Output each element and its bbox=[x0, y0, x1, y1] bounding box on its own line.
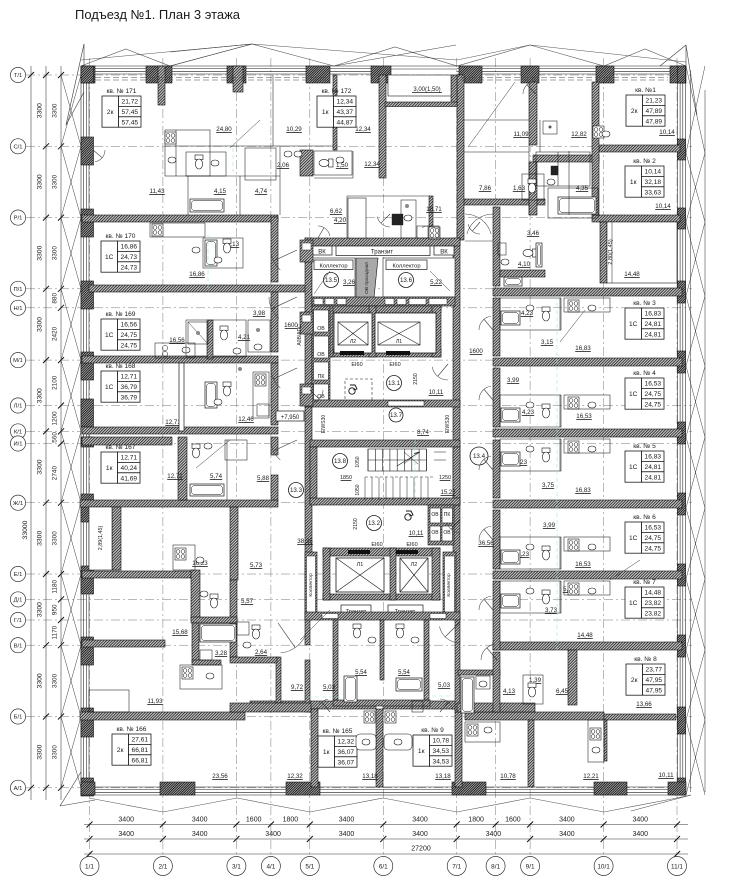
svg-text:ВК: ВК bbox=[318, 250, 326, 256]
svg-text:EI60: EI60 bbox=[371, 542, 382, 548]
svg-text:3400: 3400 bbox=[633, 831, 649, 838]
svg-text:7/1: 7/1 bbox=[452, 863, 461, 870]
svg-text:EI60: EI60 bbox=[351, 362, 362, 368]
svg-text:4,74: 4,74 bbox=[255, 188, 268, 195]
svg-text:3400: 3400 bbox=[118, 831, 134, 838]
svg-text:4,21: 4,21 bbox=[238, 334, 251, 341]
svg-text:кв. № 2: кв. № 2 bbox=[633, 158, 656, 165]
svg-text:6,45: 6,45 bbox=[556, 688, 569, 695]
svg-text:1к: 1к bbox=[106, 465, 113, 472]
svg-text:1к: 1к bbox=[418, 748, 425, 755]
svg-text:А/1: А/1 bbox=[14, 786, 23, 792]
svg-text:11,93: 11,93 bbox=[147, 698, 163, 705]
svg-text:12,46: 12,46 bbox=[238, 416, 254, 423]
svg-text:кв. № 171: кв. № 171 bbox=[107, 88, 137, 95]
svg-text:36,79: 36,79 bbox=[121, 394, 138, 401]
svg-text:12,34: 12,34 bbox=[337, 99, 354, 106]
svg-text:32,18: 32,18 bbox=[645, 179, 662, 186]
svg-text:24,73: 24,73 bbox=[121, 254, 138, 261]
svg-text:33000: 33000 bbox=[22, 520, 29, 539]
svg-text:В/1: В/1 bbox=[14, 643, 23, 649]
svg-text:И/1: И/1 bbox=[13, 442, 22, 448]
svg-text:23,82: 23,82 bbox=[645, 600, 662, 607]
svg-text:13.3: 13.3 bbox=[290, 487, 303, 494]
svg-text:8,74: 8,74 bbox=[417, 430, 429, 436]
svg-text:5,54: 5,54 bbox=[355, 670, 367, 676]
svg-text:38,35: 38,35 bbox=[297, 538, 313, 545]
svg-text:М/1: М/1 bbox=[13, 358, 23, 364]
svg-text:5,88: 5,88 bbox=[257, 475, 270, 482]
svg-text:3400: 3400 bbox=[192, 831, 208, 838]
svg-text:12,34: 12,34 bbox=[364, 161, 380, 168]
svg-text:10,29: 10,29 bbox=[286, 126, 302, 133]
svg-text:4,23: 4,23 bbox=[522, 409, 535, 416]
svg-text:950: 950 bbox=[52, 604, 59, 615]
svg-text:3300: 3300 bbox=[37, 245, 44, 260]
svg-text:6/1: 6/1 bbox=[379, 863, 388, 870]
svg-text:ОВ: ОВ bbox=[443, 530, 451, 536]
svg-text:Л2: Л2 bbox=[411, 562, 418, 568]
svg-text:24,75: 24,75 bbox=[121, 332, 138, 339]
svg-text:ВК: ВК bbox=[440, 250, 448, 256]
svg-text:24,75: 24,75 bbox=[645, 401, 662, 408]
svg-text:3400: 3400 bbox=[339, 831, 355, 838]
svg-text:Д/1: Д/1 bbox=[14, 598, 23, 604]
svg-text:ОВ: ОВ bbox=[431, 512, 439, 518]
svg-text:9,72: 9,72 bbox=[291, 684, 304, 691]
svg-text:16,86: 16,86 bbox=[189, 271, 205, 278]
svg-text:10,14: 10,14 bbox=[659, 129, 675, 136]
svg-text:А0В/АПС: А0В/АПС bbox=[297, 324, 303, 346]
svg-text:3,99: 3,99 bbox=[543, 522, 556, 529]
svg-text:24,81: 24,81 bbox=[645, 321, 662, 328]
svg-text:12,21: 12,21 bbox=[583, 773, 599, 780]
svg-text:13.1: 13.1 bbox=[388, 380, 401, 387]
svg-text:6,62: 6,62 bbox=[330, 208, 343, 215]
svg-text:57,45: 57,45 bbox=[122, 119, 139, 126]
svg-text:880: 880 bbox=[52, 293, 59, 304]
svg-text:21,72: 21,72 bbox=[122, 99, 139, 106]
svg-text:4,20: 4,20 bbox=[334, 217, 347, 224]
svg-text:3/1: 3/1 bbox=[232, 863, 241, 870]
svg-text:Г/1: Г/1 bbox=[14, 618, 22, 624]
svg-text:12,71: 12,71 bbox=[121, 455, 138, 462]
svg-text:Л/1: Л/1 bbox=[14, 404, 23, 410]
svg-text:2,80(1,45): 2,80(1,45) bbox=[608, 239, 614, 265]
svg-text:16,53: 16,53 bbox=[645, 381, 662, 388]
svg-text:3400: 3400 bbox=[118, 817, 134, 824]
svg-text:1С: 1С bbox=[105, 254, 114, 261]
svg-text:66,81: 66,81 bbox=[132, 747, 149, 754]
svg-text:3400: 3400 bbox=[486, 831, 502, 838]
svg-text:1800: 1800 bbox=[468, 817, 484, 824]
svg-text:24,75: 24,75 bbox=[645, 535, 662, 542]
svg-text:ПК: ПК bbox=[318, 374, 325, 380]
svg-text:3400: 3400 bbox=[559, 817, 575, 824]
svg-text:3300: 3300 bbox=[36, 459, 43, 474]
svg-text:5,03: 5,03 bbox=[323, 684, 336, 691]
svg-text:14,48: 14,48 bbox=[577, 632, 593, 639]
svg-text:+7,950: +7,950 bbox=[281, 415, 300, 421]
svg-text:2/1: 2/1 bbox=[158, 863, 167, 870]
svg-text:12,32: 12,32 bbox=[338, 739, 355, 746]
svg-text:47,89: 47,89 bbox=[646, 108, 663, 115]
svg-text:1600: 1600 bbox=[246, 817, 262, 824]
svg-text:1600: 1600 bbox=[505, 817, 521, 824]
svg-text:1800: 1800 bbox=[283, 817, 299, 824]
svg-text:16,53: 16,53 bbox=[575, 561, 591, 568]
svg-text:13.7: 13.7 bbox=[390, 412, 403, 419]
svg-text:15,25: 15,25 bbox=[440, 490, 456, 496]
svg-text:1С: 1С bbox=[629, 391, 638, 398]
svg-text:21,23: 21,23 bbox=[646, 98, 663, 105]
svg-text:27,61: 27,61 bbox=[132, 737, 149, 744]
svg-text:1050: 1050 bbox=[355, 484, 361, 495]
svg-text:44,87: 44,87 bbox=[337, 119, 354, 126]
svg-text:1050: 1050 bbox=[355, 456, 361, 467]
svg-text:16,83: 16,83 bbox=[645, 454, 662, 461]
svg-text:5,54: 5,54 bbox=[398, 670, 410, 676]
svg-text:1С: 1С bbox=[105, 332, 114, 339]
svg-text:3300: 3300 bbox=[37, 317, 44, 332]
svg-text:3300: 3300 bbox=[36, 174, 43, 189]
svg-text:Коллектор: Коллектор bbox=[392, 264, 420, 270]
svg-text:Р/1: Р/1 bbox=[14, 216, 23, 222]
svg-text:2,89(1,45): 2,89(1,45) bbox=[98, 526, 104, 551]
svg-text:11,09: 11,09 bbox=[513, 131, 529, 138]
svg-text:3300: 3300 bbox=[52, 246, 59, 261]
svg-text:23,56: 23,56 bbox=[212, 773, 228, 780]
svg-text:5,74: 5,74 bbox=[210, 473, 223, 480]
svg-text:ОВ: ОВ bbox=[431, 530, 439, 536]
svg-text:кв. №1: кв. №1 bbox=[635, 87, 656, 94]
svg-text:Ж/1: Ж/1 bbox=[13, 501, 23, 507]
svg-text:9/1: 9/1 bbox=[526, 863, 535, 870]
svg-text:16,83: 16,83 bbox=[575, 487, 591, 494]
svg-text:13,66: 13,66 bbox=[636, 701, 652, 708]
svg-text:3400: 3400 bbox=[412, 817, 428, 824]
svg-text:кв. № 172: кв. № 172 bbox=[322, 88, 352, 95]
svg-text:EIWS30: EIWS30 bbox=[321, 415, 327, 434]
svg-text:3,28: 3,28 bbox=[215, 650, 228, 657]
svg-text:Коллектор: Коллектор bbox=[446, 573, 452, 597]
svg-text:14,48: 14,48 bbox=[645, 590, 662, 597]
svg-text:Подъезд №1. План 3 этажа: Подъезд №1. План 3 этажа bbox=[75, 7, 241, 22]
svg-text:10,78: 10,78 bbox=[500, 773, 516, 780]
svg-text:16,56: 16,56 bbox=[121, 322, 138, 329]
svg-text:1,63: 1,63 bbox=[513, 185, 526, 192]
svg-text:13,18: 13,18 bbox=[362, 773, 378, 780]
svg-text:EIWS30: EIWS30 bbox=[445, 415, 451, 434]
svg-text:12,32: 12,32 bbox=[287, 773, 303, 780]
svg-text:Е/1: Е/1 bbox=[14, 572, 23, 578]
svg-text:Л1: Л1 bbox=[357, 562, 364, 568]
svg-text:1С: 1С bbox=[629, 321, 638, 328]
svg-text:EI60: EI60 bbox=[406, 542, 417, 548]
svg-text:2к: 2к bbox=[117, 747, 124, 754]
svg-text:13.5: 13.5 bbox=[325, 277, 338, 284]
svg-text:1к: 1к bbox=[630, 179, 637, 186]
svg-text:24,75: 24,75 bbox=[645, 391, 662, 398]
svg-text:кв. № 8: кв. № 8 bbox=[634, 656, 657, 663]
svg-text:1850: 1850 bbox=[340, 475, 352, 481]
svg-text:3300: 3300 bbox=[36, 103, 43, 118]
svg-text:5,03: 5,03 bbox=[438, 682, 451, 689]
svg-text:12,71: 12,71 bbox=[167, 473, 183, 480]
svg-text:3300: 3300 bbox=[37, 744, 44, 759]
svg-text:Т/1: Т/1 bbox=[14, 73, 22, 79]
svg-text:3,15: 3,15 bbox=[541, 339, 554, 346]
svg-text:36,07: 36,07 bbox=[338, 759, 355, 766]
svg-text:С/1: С/1 bbox=[13, 144, 22, 150]
svg-text:Л2: Л2 bbox=[350, 339, 356, 345]
svg-text:Коллектор: Коллектор bbox=[308, 573, 314, 597]
svg-text:15,68: 15,68 bbox=[172, 629, 188, 636]
svg-text:3300: 3300 bbox=[36, 531, 43, 546]
svg-text:560: 560 bbox=[51, 432, 58, 443]
svg-text:кв. № 165: кв. № 165 bbox=[323, 728, 353, 735]
svg-text:66,81: 66,81 bbox=[132, 757, 149, 764]
svg-text:47,89: 47,89 bbox=[646, 118, 663, 125]
svg-text:4,13: 4,13 bbox=[503, 688, 516, 695]
svg-text:41,69: 41,69 bbox=[121, 475, 138, 482]
svg-text:2150: 2150 bbox=[353, 518, 359, 530]
svg-text:10,78: 10,78 bbox=[433, 738, 450, 745]
svg-text:3300: 3300 bbox=[37, 602, 44, 617]
svg-text:14,48: 14,48 bbox=[624, 271, 640, 278]
svg-text:кв. № 9: кв. № 9 bbox=[421, 727, 444, 734]
svg-text:кв. № 170: кв. № 170 bbox=[106, 233, 136, 240]
svg-text:10,14: 10,14 bbox=[645, 169, 662, 176]
svg-text:3,00(1,50): 3,00(1,50) bbox=[413, 87, 440, 93]
svg-text:1600: 1600 bbox=[284, 322, 298, 329]
svg-text:24,73: 24,73 bbox=[121, 264, 138, 271]
svg-text:23,77: 23,77 bbox=[646, 667, 663, 674]
svg-text:Коллектор: Коллектор bbox=[319, 264, 347, 270]
svg-text:5/1: 5/1 bbox=[305, 863, 314, 870]
svg-text:ОВ: ОВ bbox=[317, 352, 325, 358]
svg-text:1С: 1С bbox=[629, 464, 638, 471]
svg-text:2740: 2740 bbox=[52, 466, 59, 481]
svg-text:5,22: 5,22 bbox=[430, 280, 442, 286]
svg-text:1200: 1200 bbox=[51, 411, 58, 426]
svg-text:10,11: 10,11 bbox=[409, 531, 424, 537]
svg-text:1250: 1250 bbox=[439, 475, 451, 481]
svg-text:EI60: EI60 bbox=[389, 362, 400, 368]
svg-text:13.8: 13.8 bbox=[334, 458, 347, 465]
svg-text:12,71: 12,71 bbox=[121, 374, 138, 381]
svg-text:3300: 3300 bbox=[51, 174, 58, 189]
svg-text:24,81: 24,81 bbox=[645, 464, 662, 471]
svg-text:33,63: 33,63 bbox=[645, 189, 662, 196]
svg-text:3,46: 3,46 bbox=[527, 230, 540, 237]
svg-text:18,71: 18,71 bbox=[426, 206, 442, 213]
svg-text:1С: 1С bbox=[629, 535, 638, 542]
svg-text:24,75: 24,75 bbox=[645, 545, 662, 552]
svg-text:3400: 3400 bbox=[633, 817, 649, 824]
svg-text:36,79: 36,79 bbox=[121, 384, 138, 391]
svg-text:1600: 1600 bbox=[469, 348, 483, 355]
svg-text:1к: 1к bbox=[322, 109, 329, 116]
svg-text:1180: 1180 bbox=[52, 579, 59, 593]
svg-text:1С: 1С bbox=[105, 384, 114, 391]
svg-text:36,07: 36,07 bbox=[338, 749, 355, 756]
svg-text:12,82: 12,82 bbox=[571, 131, 587, 138]
svg-text:10,11: 10,11 bbox=[658, 772, 674, 779]
svg-text:24,81: 24,81 bbox=[645, 474, 662, 481]
svg-text:13.6: 13.6 bbox=[400, 277, 413, 284]
svg-text:К/1: К/1 bbox=[14, 430, 22, 436]
svg-text:1С: 1С bbox=[629, 600, 638, 607]
svg-text:2150: 2150 bbox=[413, 373, 419, 385]
svg-text:1,50: 1,50 bbox=[336, 162, 349, 169]
svg-text:13,18: 13,18 bbox=[435, 773, 451, 780]
svg-text:П/1: П/1 bbox=[13, 287, 22, 293]
svg-text:4,15: 4,15 bbox=[214, 188, 227, 195]
svg-text:кв. № 3: кв. № 3 bbox=[633, 300, 656, 307]
svg-text:2к: 2к bbox=[107, 109, 114, 116]
svg-text:2,64: 2,64 bbox=[255, 649, 268, 656]
svg-text:3300: 3300 bbox=[52, 531, 59, 546]
svg-text:3,98: 3,98 bbox=[253, 310, 266, 317]
svg-text:40,24: 40,24 bbox=[121, 465, 138, 472]
svg-text:7,86: 7,86 bbox=[479, 185, 492, 192]
svg-text:34,53: 34,53 bbox=[433, 748, 450, 755]
svg-text:кв. № 4: кв. № 4 bbox=[633, 370, 656, 377]
svg-text:3,99: 3,99 bbox=[507, 377, 520, 384]
svg-text:24,80: 24,80 bbox=[216, 126, 232, 133]
svg-text:11,43: 11,43 bbox=[149, 188, 165, 195]
svg-text:3400: 3400 bbox=[265, 831, 281, 838]
svg-text:8/1: 8/1 bbox=[491, 863, 500, 870]
svg-text:11/1: 11/1 bbox=[671, 863, 683, 870]
svg-text:43,37: 43,37 bbox=[337, 109, 354, 116]
svg-text:кв. № 7: кв. № 7 bbox=[633, 579, 656, 586]
svg-text:кв. № 166: кв. № 166 bbox=[117, 726, 147, 733]
svg-text:5,57: 5,57 bbox=[241, 598, 254, 605]
svg-text:10,14: 10,14 bbox=[655, 203, 671, 210]
svg-text:1170: 1170 bbox=[51, 625, 58, 639]
svg-text:кв. № 169: кв. № 169 bbox=[106, 311, 136, 318]
svg-text:57,45: 57,45 bbox=[122, 109, 139, 116]
svg-text:5,73: 5,73 bbox=[250, 562, 263, 569]
svg-text:10/1: 10/1 bbox=[597, 863, 610, 870]
svg-text:ОВ: ОВ bbox=[317, 326, 325, 332]
svg-text:34,53: 34,53 bbox=[433, 758, 450, 765]
svg-text:13.2: 13.2 bbox=[368, 520, 381, 527]
svg-text:3300: 3300 bbox=[52, 745, 59, 760]
svg-text:2к: 2к bbox=[631, 677, 638, 684]
svg-text:3400: 3400 bbox=[339, 817, 355, 824]
svg-text:24,75: 24,75 bbox=[121, 342, 138, 349]
svg-text:12,34: 12,34 bbox=[355, 126, 371, 133]
svg-text:кв. № 6: кв. № 6 bbox=[633, 514, 656, 521]
svg-text:2к: 2к bbox=[631, 108, 638, 115]
svg-text:кв. № 168: кв. № 168 bbox=[106, 363, 136, 370]
svg-text:2,06: 2,06 bbox=[277, 162, 290, 169]
svg-text:47,95: 47,95 bbox=[646, 687, 663, 694]
svg-text:кв. № 5: кв. № 5 bbox=[633, 443, 656, 450]
svg-text:кв. № 167: кв. № 167 bbox=[106, 444, 136, 451]
svg-text:10,11: 10,11 bbox=[429, 390, 444, 396]
svg-text:3300: 3300 bbox=[52, 103, 59, 118]
svg-text:1к: 1к bbox=[323, 749, 330, 756]
svg-text:Транзит: Транзит bbox=[371, 250, 393, 256]
svg-text:47,95: 47,95 bbox=[646, 677, 663, 684]
svg-text:2100: 2100 bbox=[52, 375, 59, 390]
svg-text:4,10: 4,10 bbox=[518, 261, 531, 268]
svg-text:16,83: 16,83 bbox=[575, 345, 591, 352]
svg-text:3400: 3400 bbox=[192, 817, 208, 824]
svg-text:16,53: 16,53 bbox=[645, 525, 662, 532]
svg-text:3300: 3300 bbox=[37, 673, 44, 688]
svg-text:3,75: 3,75 bbox=[542, 482, 555, 489]
svg-text:16,86: 16,86 bbox=[121, 244, 138, 251]
svg-text:3400: 3400 bbox=[559, 831, 575, 838]
svg-text:3,26: 3,26 bbox=[343, 280, 355, 286]
svg-text:23,82: 23,82 bbox=[645, 610, 662, 617]
svg-text:ПК: ПК bbox=[444, 512, 451, 518]
svg-text:16,83: 16,83 bbox=[645, 311, 662, 318]
svg-text:3300: 3300 bbox=[52, 673, 59, 688]
svg-text:3300: 3300 bbox=[37, 388, 44, 403]
svg-text:4/1: 4/1 bbox=[266, 863, 275, 870]
svg-text:Л1: Л1 bbox=[396, 339, 402, 345]
svg-text:Б/1: Б/1 bbox=[14, 715, 23, 721]
svg-text:1/1: 1/1 bbox=[85, 863, 94, 870]
svg-text:16,53: 16,53 bbox=[576, 413, 592, 420]
svg-text:36,56: 36,56 bbox=[478, 540, 494, 547]
svg-text:Н/1: Н/1 bbox=[13, 306, 22, 312]
svg-text:2420: 2420 bbox=[52, 326, 59, 341]
svg-text:27200: 27200 bbox=[411, 846, 431, 853]
svg-text:ОВ проходная: ОВ проходная bbox=[364, 262, 370, 294]
svg-text:24,81: 24,81 bbox=[645, 331, 662, 338]
svg-text:3400: 3400 bbox=[412, 831, 428, 838]
